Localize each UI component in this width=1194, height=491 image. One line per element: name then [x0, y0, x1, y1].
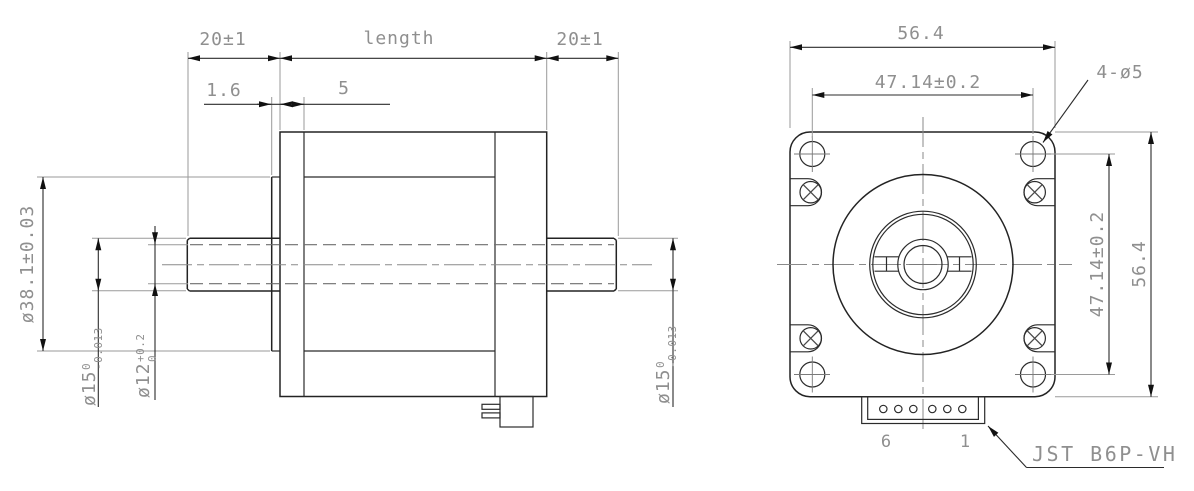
dim-overall-height: 56.4 — [1129, 240, 1150, 287]
dim-rear-shaft-diameter: ø15 0 -0.013 — [648, 325, 679, 404]
dim-overall-width: 56.4 — [897, 23, 944, 44]
technical-drawing-page: 20±1 length 20±1 1.6 5 ø38.1±0.03 ø15 0 … — [0, 0, 1194, 491]
pilot-boss — [272, 177, 280, 351]
connector-pin-6-label: 6 — [881, 432, 892, 452]
dim-boss-diameter: ø38.1±0.03 — [17, 205, 38, 323]
front-view: 56.4 47.14±0.2 4-ø5 47.14±0.2 56.4 6 1 J… — [777, 23, 1177, 468]
connector-type-label: JST B6P-VH — [1032, 442, 1177, 466]
connector-leader-line — [988, 426, 1027, 468]
dim-body-length: length — [363, 28, 434, 49]
holes-leader-line — [1043, 80, 1088, 143]
side-view: 20±1 length 20±1 1.6 5 ø38.1±0.03 ø15 0 … — [17, 28, 679, 427]
connector-pin-1-label: 1 — [960, 432, 971, 452]
dim-pilot-depth: 5 — [338, 78, 350, 99]
dim-rear-shaft-length: 20±1 — [556, 29, 603, 50]
side-view-extension-lines — [37, 52, 678, 351]
dim-front-shaft-length: 20±1 — [199, 29, 246, 50]
dim-shaft-flat-diameter: ø12 +0.2 0 — [128, 322, 159, 398]
side-connector — [482, 397, 533, 428]
dim-hole-spacing-horizontal: 47.14±0.2 — [875, 72, 982, 93]
stepper-motor-drawing: 20±1 length 20±1 1.6 5 ø38.1±0.03 ø15 0 … — [0, 0, 1194, 491]
dim-hole-spacing-vertical: 47.14±0.2 — [1087, 211, 1108, 318]
dim-boss-thickness: 1.6 — [206, 80, 242, 101]
dim-front-shaft-diameter: ø15 0 -0.013 — [74, 327, 105, 406]
dim-mounting-holes: 4-ø5 — [1096, 62, 1143, 83]
